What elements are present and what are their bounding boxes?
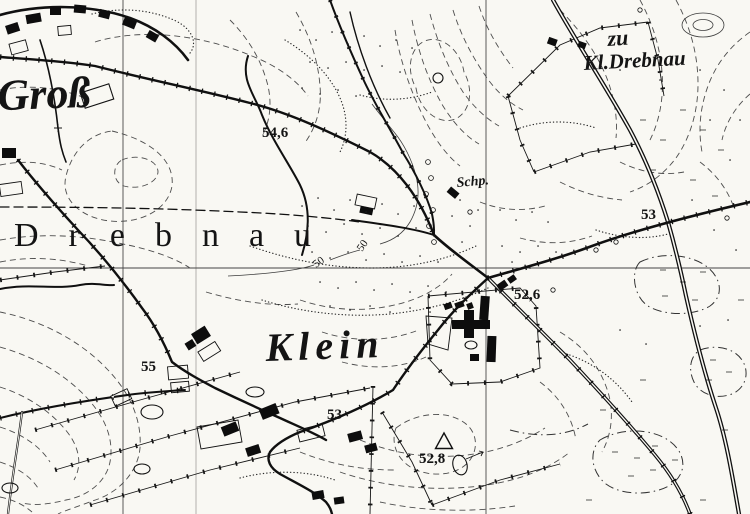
elevation-label-528: 52,8 <box>419 451 445 467</box>
roads <box>0 0 750 514</box>
road-east <box>488 202 750 278</box>
map-labels: Groß Drebnau Klein zu Kl.Drebnau Schp. 5… <box>0 25 686 467</box>
road-southeast <box>488 278 690 514</box>
road-chaussee <box>553 0 739 514</box>
elevation-label-53-village: 53 <box>327 407 342 423</box>
elevation-label-546: 54,6 <box>262 125 289 141</box>
road-west-solid <box>352 220 434 235</box>
elevation-label-53-east: 53 <box>641 207 656 223</box>
place-label-klein: Klein <box>264 321 385 370</box>
map-canvas[interactable]: Groß Drebnau Klein zu Kl.Drebnau Schp. 5… <box>0 0 750 514</box>
place-label-zu: zu <box>606 25 629 51</box>
road-southwest-corner <box>0 390 185 514</box>
place-label-kl-drebnau: Kl.Drebnau <box>582 46 686 75</box>
cross-symbol <box>54 124 62 132</box>
ponds <box>2 73 483 493</box>
contour-label-50-upper: 50 <box>355 237 371 253</box>
wetland-outlines <box>510 256 746 493</box>
pond-with-arrow <box>451 451 483 476</box>
place-label-gross: Groß <box>0 68 91 120</box>
marsh-symbols <box>586 110 744 500</box>
topographic-map: Groß Drebnau Klein zu Kl.Drebnau Schp. 5… <box>0 0 750 514</box>
label-schuppen: Schp. <box>456 173 489 191</box>
trig-point-icon <box>436 433 453 449</box>
road-southwest-village <box>268 278 488 514</box>
road-northwest-village <box>18 160 326 440</box>
elevation-label-55: 55 <box>141 359 156 375</box>
road-junction-to-cross <box>434 235 488 278</box>
elevation-label-526: 52,6 <box>514 287 541 303</box>
place-label-drebnau: Drebnau <box>14 217 341 254</box>
